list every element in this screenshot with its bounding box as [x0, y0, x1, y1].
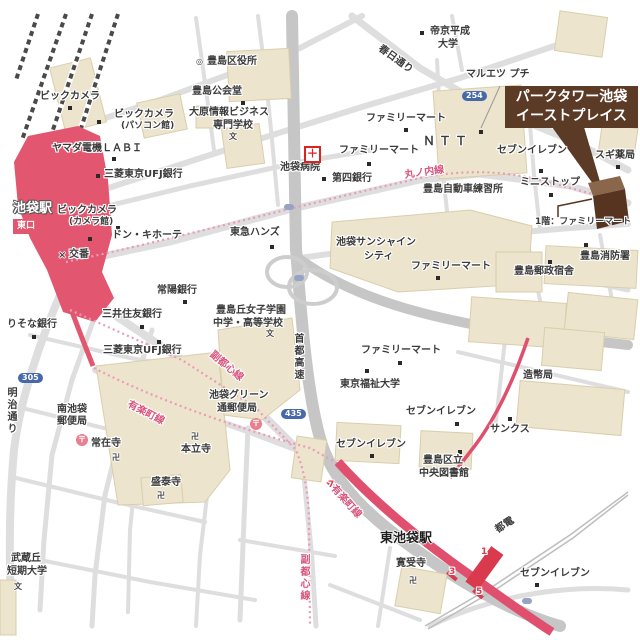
- poi-marker-dot: [140, 325, 144, 329]
- road-label-shuto-expressway: 首都高速: [292, 333, 302, 381]
- school-icon: 文: [229, 133, 237, 141]
- poi-marker-dot: [97, 120, 101, 124]
- poi-joyo-bank: 常陽銀行: [157, 286, 197, 296]
- poi-marker-dot: [367, 162, 371, 166]
- poi-girls-school-2: 中学・高等学校: [213, 319, 283, 329]
- poi-marker-dot: [241, 101, 245, 105]
- poi-marker-dot: [96, 174, 100, 178]
- poi-marker-dot: [539, 169, 543, 173]
- school-icon: 文: [14, 583, 22, 591]
- poi-marker-dot: [549, 193, 553, 197]
- poi-marker-dot: [455, 422, 459, 426]
- poi-driving-school: 豊島自動車練習所: [423, 185, 503, 195]
- poi-sugi-pharmacy: スギ薬局: [595, 151, 635, 161]
- route-shield-254: 254: [462, 91, 487, 101]
- poi-seven-eleven-3: セブンイレブン: [336, 440, 406, 450]
- poi-marker-dot: [548, 260, 552, 264]
- poi-marker-dot: [436, 276, 440, 280]
- floor-note: 1階：ファミリーマート: [535, 218, 631, 227]
- exit-number-3: 3: [449, 568, 455, 577]
- poi-yusei-dorm: 豊島郵政宿舎: [514, 267, 574, 277]
- route-shield-small: [522, 598, 532, 604]
- poi-familymart-2: ファミリーマート: [339, 146, 419, 156]
- poi-maruetsu-petit: マルエツ プチ: [466, 70, 529, 80]
- poi-kokaido: 豊島公会堂: [192, 87, 242, 97]
- poi-ministop: ミニストップ: [520, 178, 580, 188]
- temple-icon: 卍: [112, 454, 120, 462]
- poi-sankus: サンクス: [490, 425, 530, 435]
- road-label-meiji-dori: 明治通り: [5, 387, 15, 435]
- poi-library-2: 中央図書館: [419, 469, 469, 479]
- title-line2: イーストプレイス: [505, 107, 638, 126]
- poi-ufj-bank-south: 三菱東京UFJ銀行: [103, 346, 182, 356]
- poi-marker-dot: [365, 369, 369, 373]
- poi-familymart-3: ファミリーマート: [411, 262, 491, 272]
- poi-marker-dot: [616, 165, 620, 169]
- poi-teikyo-univ-2: 大学: [438, 40, 458, 50]
- poi-sunshine-city-1: 池袋サンシャイン: [336, 238, 416, 248]
- poi-mint-bureau: 造幣局: [523, 371, 553, 381]
- koban-icon: ×: [58, 251, 66, 261]
- poi-familymart-4: ファミリーマート: [361, 346, 441, 356]
- poi-tokyu-hands: 東急ハンズ: [230, 228, 280, 238]
- poi-seven-eleven-1: セブンイレブン: [497, 146, 567, 156]
- poi-don-quijote: ドン・キホーテ: [112, 231, 182, 241]
- poi-minami-post-2: 郵便局: [57, 417, 87, 427]
- route-shield-305: 305: [18, 373, 43, 383]
- poi-smbc-bank: 三井住友銀行: [102, 310, 162, 320]
- poi-girls-school-1: 豊島丘女子学園: [216, 306, 286, 316]
- hospital-icon: ＋: [304, 146, 321, 163]
- map-canvas: パークタワー池袋 イーストプレイス 1階：ファミリーマート 池袋駅 東口 東池袋…: [0, 0, 640, 640]
- poi-jozaiji: 常在寺: [91, 439, 121, 449]
- temple-icon: 卍: [157, 492, 165, 500]
- route-shield-small: [294, 275, 304, 281]
- post-office-icon: 〒: [250, 418, 262, 430]
- poi-seven-eleven-4: セブンイレブン: [520, 569, 590, 579]
- poi-marker-dot: [479, 130, 483, 134]
- yurakucho-line-band: [338, 462, 552, 632]
- poi-bic-camera-cam: ビックカメラ: [57, 206, 117, 216]
- floor-note-connector: [558, 199, 592, 217]
- poi-bic-camera-pc-sub: (パソコン館): [121, 122, 174, 131]
- poi-minami-post-1: 南池袋: [57, 405, 87, 415]
- poi-ohara-school-2: 専門学校: [213, 121, 253, 131]
- poi-marker-dot: [112, 157, 116, 161]
- east-exit-badge: 東口: [13, 219, 39, 234]
- school-icon: 文: [266, 330, 274, 338]
- station-label-higashi-ikebukuro: 東池袋駅: [380, 527, 432, 546]
- poi-ikebukuro-hospital: 池袋病院: [280, 163, 320, 173]
- post-office-icon: 〒: [76, 434, 88, 446]
- poi-green-post-1: 池袋グリーン: [209, 391, 269, 401]
- poi-marker-dot: [32, 335, 36, 339]
- poi-marker-dot: [584, 243, 588, 247]
- line-label-fukutoshin-vert: 副都心線: [298, 554, 308, 602]
- exit-number-7: 7: [328, 481, 334, 490]
- poi-marker-dot: [68, 106, 72, 110]
- poi-marker-dot: [88, 237, 92, 241]
- route-shield-small: [284, 204, 294, 210]
- poi-marker-dot: [370, 454, 374, 458]
- temple-icon: 卍: [409, 577, 417, 585]
- exit-number-1: 1: [481, 548, 487, 557]
- poi-ntt: ＮＴＴ: [423, 135, 471, 147]
- exit-number-5: 5: [476, 588, 482, 597]
- poi-marker-dot: [183, 300, 187, 304]
- title-box: パークタワー池袋 イーストプレイス: [505, 86, 638, 128]
- poi-yamada-labi: ヤマダ電機ＬＡＢＩ: [52, 144, 142, 154]
- poi-kanjuji: 寛受寺: [396, 559, 426, 569]
- poi-sunshine-city-2: シティ: [364, 252, 393, 262]
- poi-honryuji: 本立寺: [181, 445, 211, 455]
- poi-marker-dot: [270, 245, 274, 249]
- station-label-ikebukuro: 池袋駅: [13, 197, 52, 216]
- poi-green-post-2: 通郵便局: [217, 404, 257, 414]
- poi-fukushi-univ: 東京福祉大学: [340, 380, 400, 390]
- poi-marker-dot: [508, 417, 512, 421]
- poi-seven-eleven-2: セブンイレブン: [406, 407, 476, 417]
- temple-icon: 卍: [191, 433, 199, 441]
- ward-office-icon: ◎: [196, 58, 203, 66]
- poi-daishi-bank: 第四銀行: [332, 174, 372, 184]
- poi-risona-bank: りそな銀行: [7, 320, 57, 330]
- poi-musashi-college-2: 短期大学: [7, 567, 47, 577]
- poi-bic-camera-cam-sub: (カメラ館): [69, 218, 113, 227]
- poi-seitaiji: 盛泰寺: [151, 478, 181, 488]
- poi-familymart-1: ファミリーマート: [366, 114, 446, 124]
- poi-marker-dot: [157, 340, 161, 344]
- poi-fire-station: 豊島消防署: [580, 252, 630, 262]
- poi-marker-dot: [322, 177, 326, 181]
- poi-marker-dot: [398, 361, 402, 365]
- poi-bic-camera-pc: ビックカメラ: [114, 110, 174, 120]
- poi-marker-dot: [404, 128, 408, 132]
- poi-teikyo-univ-1: 帝京平成: [430, 27, 470, 37]
- poi-marker-dot: [535, 583, 539, 587]
- title-line1: パークタワー池袋: [505, 88, 638, 107]
- poi-ufj-bank-north: 三菱東京UFJ銀行: [104, 170, 183, 180]
- poi-library-1: 豊島区立: [423, 456, 463, 466]
- route-shield-435: 435: [281, 409, 306, 419]
- poi-marker-dot: [420, 31, 424, 35]
- poi-koban: 交番: [69, 250, 89, 260]
- poi-ward-office: 豊島区役所: [207, 57, 257, 67]
- poi-bic-camera: ビックカメラ: [40, 92, 100, 102]
- poi-musashi-college-1: 武蔵丘: [11, 554, 41, 564]
- poi-marker-dot: [458, 450, 462, 454]
- poi-ohara-school-1: 大原情報ビジネス: [189, 108, 269, 118]
